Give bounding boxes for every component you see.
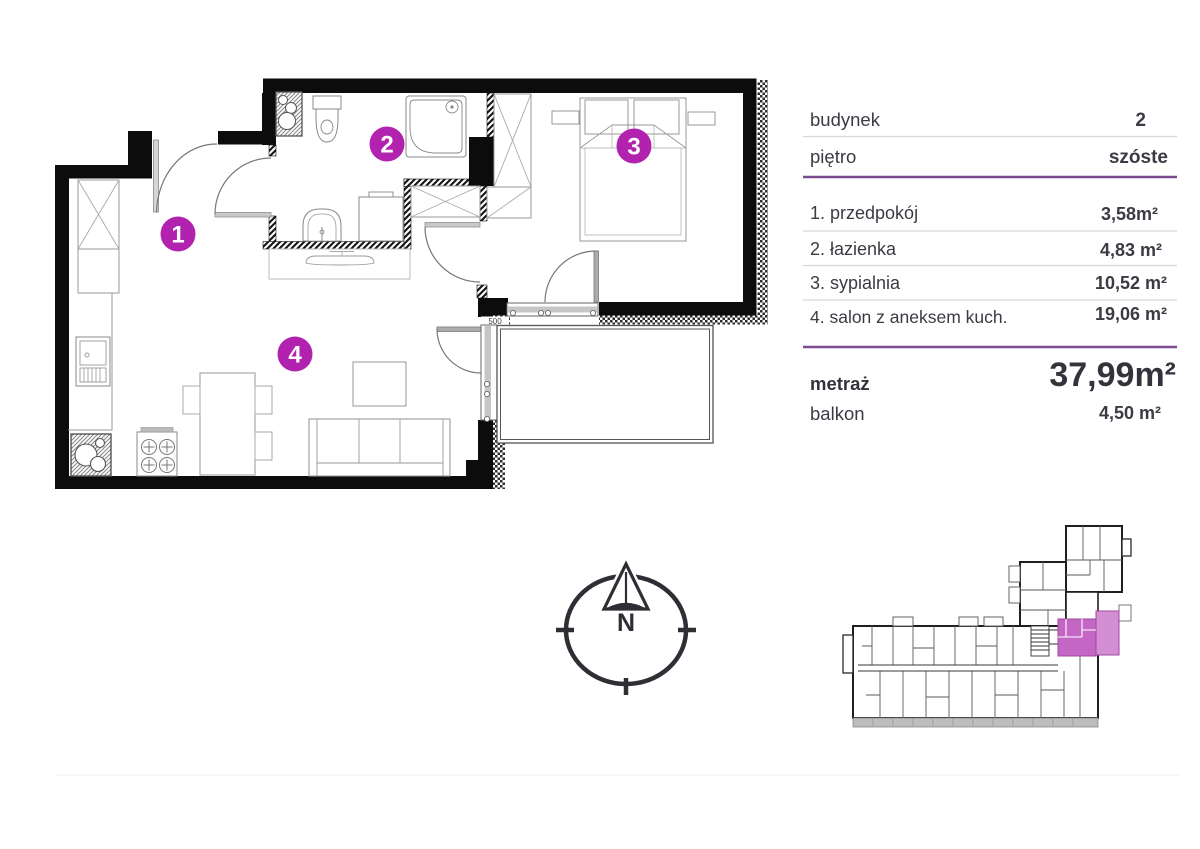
svg-text:37,99m²: 37,99m² bbox=[1049, 356, 1176, 394]
svg-text:2. łazienka: 2. łazienka bbox=[810, 239, 897, 259]
svg-text:4: 4 bbox=[288, 342, 302, 369]
svg-text:2: 2 bbox=[380, 132, 393, 159]
svg-text:3: 3 bbox=[627, 134, 640, 161]
svg-text:budynek: budynek bbox=[810, 109, 881, 130]
svg-text:4. salon z aneksem kuch.: 4. salon z aneksem kuch. bbox=[810, 307, 1007, 327]
svg-text:balkon: balkon bbox=[810, 403, 865, 424]
svg-text:szóste: szóste bbox=[1109, 147, 1168, 168]
svg-text:piętro: piętro bbox=[810, 146, 856, 167]
svg-text:3. sypialnia: 3. sypialnia bbox=[810, 273, 901, 293]
svg-text:4,83 m²: 4,83 m² bbox=[1100, 240, 1162, 260]
svg-text:metraż: metraż bbox=[810, 373, 870, 394]
svg-text:3,58m²: 3,58m² bbox=[1101, 204, 1158, 224]
svg-text:4,50 m²: 4,50 m² bbox=[1099, 403, 1161, 423]
svg-text:N: N bbox=[617, 609, 635, 637]
svg-text:1. przedpokój: 1. przedpokój bbox=[810, 203, 918, 223]
svg-text:19,06 m²: 19,06 m² bbox=[1095, 304, 1167, 324]
svg-text:1: 1 bbox=[171, 222, 184, 249]
svg-text:2: 2 bbox=[1135, 110, 1146, 131]
svg-text:10,52 m²: 10,52 m² bbox=[1095, 273, 1167, 293]
